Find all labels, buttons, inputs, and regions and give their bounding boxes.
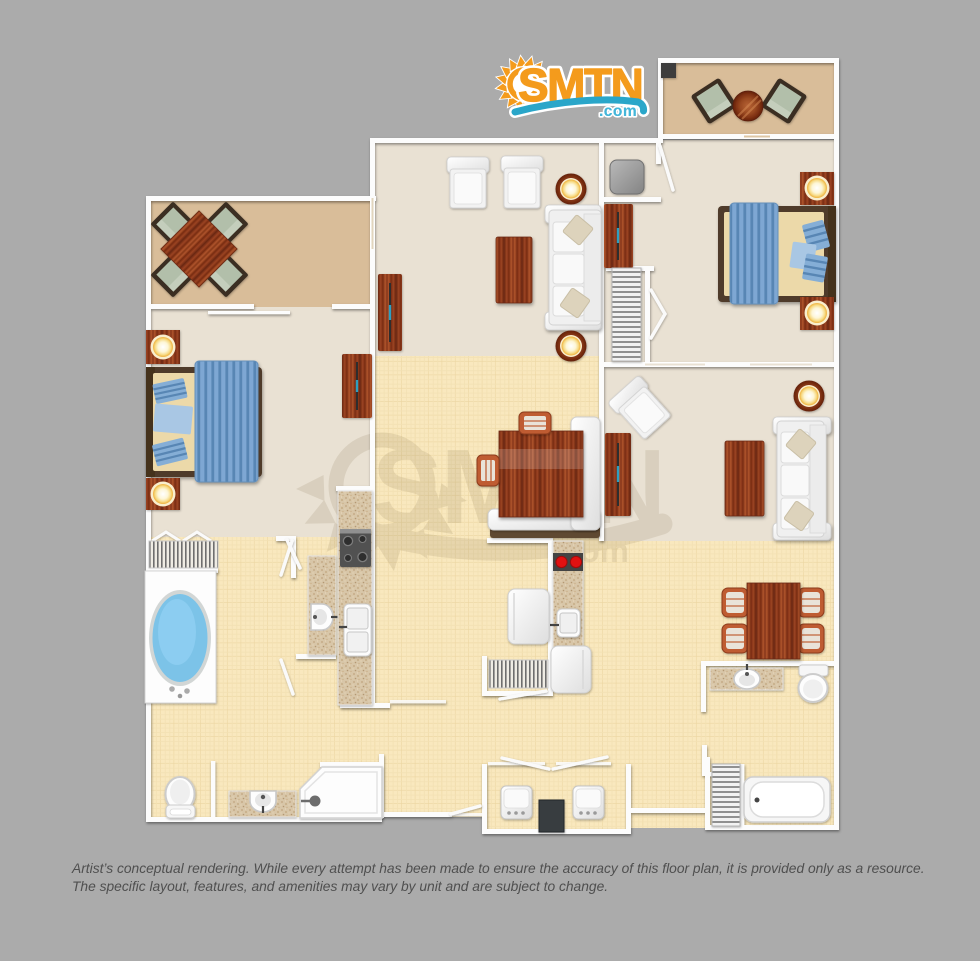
svg-text:Artist’s conceptual rendering.: Artist’s conceptual rendering. While eve… <box>71 861 925 876</box>
svg-text:The specific layout, features,: The specific layout, features, and ameni… <box>72 879 608 894</box>
svg-text:.com: .com <box>599 103 637 120</box>
